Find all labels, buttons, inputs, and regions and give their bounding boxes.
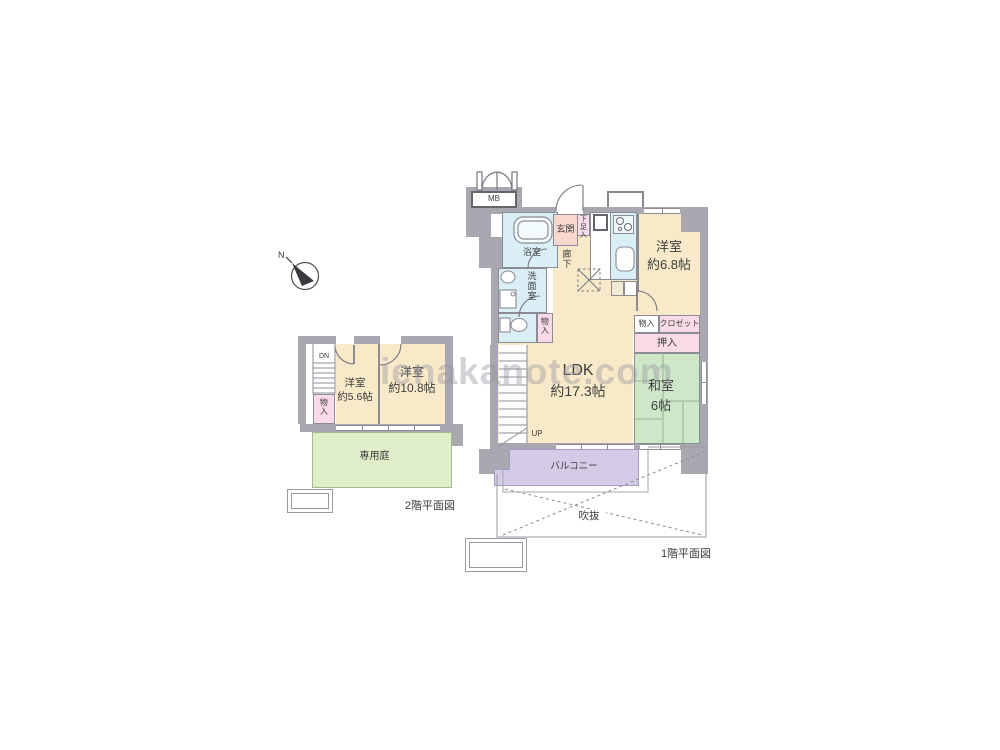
toilet-storage-label: 物入 (540, 317, 548, 335)
western-room-size: 約6.8帖 (633, 256, 705, 274)
wall-left-lower (490, 345, 498, 450)
wall-2f-top-c (401, 336, 453, 344)
stairs-down-label: DN (314, 352, 334, 361)
void-label: 吹抜 (572, 509, 606, 523)
compass-north-label: N (278, 250, 285, 260)
window-tick (701, 382, 707, 383)
balcony-label: バルコニー (509, 461, 639, 474)
hallway-label: 廊下 (561, 249, 570, 269)
floor2-title: 2階平面図 (402, 499, 458, 514)
bath-label: 浴室 (512, 246, 552, 258)
closet-label: クロゼット (659, 319, 700, 330)
window-tick (362, 425, 363, 431)
wall-2f-top-a (298, 336, 336, 344)
lower-structure-2f-inner (291, 493, 329, 509)
room-bath (502, 212, 558, 268)
western-small-name: 洋室 (329, 376, 381, 390)
wall-step-2 (479, 237, 502, 268)
wall-2f-left (298, 344, 306, 424)
wall-balcony-right-block (681, 449, 708, 474)
western-small-label: 洋室 約5.6帖 (329, 376, 381, 404)
oshiire-label: 押入 (634, 337, 700, 351)
kitchen-stove (613, 215, 634, 234)
window-tick (414, 425, 415, 431)
western-room-label: 洋室 約6.8帖 (633, 238, 705, 273)
wall-left-upper (491, 268, 498, 345)
window-tick (660, 444, 661, 450)
shoe-box-label: 下足入 (579, 215, 586, 239)
meter-box-label: MB (466, 194, 522, 205)
western-large-name: 洋室 (376, 364, 448, 380)
wall-step-1 (466, 214, 491, 237)
ldk-name: LDK (518, 360, 638, 382)
western-large-label: 洋室 約10.8帖 (376, 364, 448, 396)
lower-structure-1f-inner (469, 542, 523, 568)
window-tick (662, 208, 663, 214)
ldk-size: 約17.3帖 (518, 382, 638, 401)
western-room-name: 洋室 (633, 238, 705, 256)
wall-corner-ne (681, 207, 708, 232)
wall-2f-top-b (354, 336, 380, 344)
compass-icon: N (278, 250, 319, 290)
pipe-space-box (593, 214, 608, 231)
storage-row-label: 物入 (634, 319, 659, 330)
western-small-size: 約5.6帖 (329, 390, 381, 404)
western-large-size: 約10.8帖 (376, 380, 448, 396)
kitchen-box-1 (611, 281, 624, 296)
washroom-label: 洗面室 (526, 271, 535, 301)
genkan-label: 玄関 (551, 223, 580, 235)
floorplan-canvas: N MB 玄関 下足入 浴室 洗面室 廊下 物入 洋室 約6.8帖 物入 クロゼ… (0, 0, 1000, 750)
balcony-ext (494, 469, 510, 486)
ldk-label: LDK 約17.3帖 (518, 360, 638, 400)
window-tick (388, 425, 389, 431)
garden-label: 専用庭 (312, 450, 437, 464)
room-washroom (498, 268, 547, 313)
stairs-up-label: UP (527, 429, 547, 440)
floor1-title: 1階平面図 (658, 547, 714, 562)
kitchen-box-2 (624, 281, 637, 296)
room-toilet (498, 313, 537, 343)
window-washitsu-east (701, 362, 707, 404)
storage-2f-label: 物入 (319, 398, 327, 416)
